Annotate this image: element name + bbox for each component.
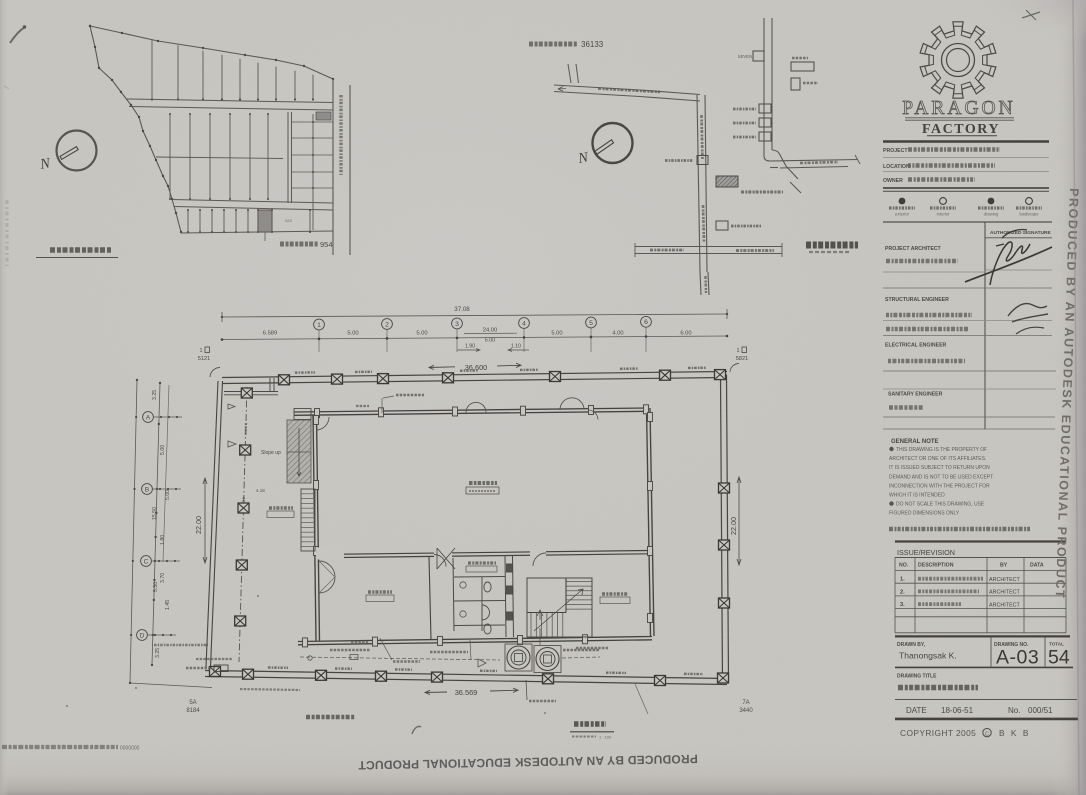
- svg-text:3.70: 3.70: [160, 573, 166, 583]
- svg-text:36133: 36133: [581, 40, 604, 49]
- svg-text:5821: 5821: [736, 356, 748, 362]
- svg-text:WHICH IT IS INTENDED: WHICH IT IS INTENDED: [889, 493, 945, 499]
- svg-text:5.00: 5.00: [347, 331, 358, 337]
- svg-text:24.00: 24.00: [483, 328, 498, 334]
- svg-text:023: 023: [285, 218, 292, 223]
- svg-text:FIGURED DIMENSIONS ONLY: FIGURED DIMENSIONS ONLY: [889, 511, 960, 517]
- svg-text:3.25: 3.25: [152, 390, 158, 400]
- svg-text:8184: 8184: [186, 708, 200, 714]
- svg-text:PROJECT: PROJECT: [883, 148, 908, 154]
- svg-text:GENERAL NOTE: GENERAL NOTE: [891, 439, 939, 445]
- svg-text:DATA: DATA: [1030, 563, 1044, 569]
- svg-text:15.50: 15.50: [152, 507, 158, 520]
- svg-text:5.00: 5.00: [416, 331, 427, 337]
- svg-text:000/51: 000/51: [1028, 706, 1053, 715]
- svg-text:18-06-51: 18-06-51: [941, 706, 974, 715]
- svg-text:THIS DRAWING IS THE PROPER: THIS DRAWING IS THE PROPERTY OF: [896, 447, 987, 453]
- svg-text:1.80: 1.80: [160, 535, 166, 545]
- svg-text:ARCHITECT: ARCHITECT: [989, 590, 1021, 596]
- svg-text:Slope up: Slope up: [261, 450, 281, 456]
- svg-text:IT IS ISSUED SUBJECT TO R: IT IS ISSUED SUBJECT TO RETURN UPON: [889, 465, 990, 471]
- svg-text:BY: BY: [1000, 563, 1008, 569]
- svg-text:STRUCTURAL ENGINEER: STRUCTURAL ENGINEER: [885, 297, 949, 303]
- svg-text:4.00: 4.00: [612, 331, 623, 337]
- svg-text:1 : 100: 1 : 100: [599, 735, 612, 740]
- svg-text:FACTORY: FACTORY: [922, 122, 1000, 137]
- svg-text:5.00: 5.00: [485, 338, 496, 344]
- svg-text:SEVEN: SEVEN: [738, 54, 752, 59]
- svg-text:ISSUE/REVISION: ISSUE/REVISION: [897, 548, 955, 557]
- svg-text:0000000: 0000000: [120, 746, 140, 752]
- svg-text:5.00: 5.00: [551, 331, 562, 337]
- svg-text:Interior: Interior: [936, 212, 950, 217]
- svg-text:954: 954: [320, 240, 333, 249]
- svg-text:1: 1: [737, 348, 740, 354]
- svg-text:1.45: 1.45: [165, 600, 171, 610]
- svg-text:7A: 7A: [742, 700, 749, 706]
- svg-text:COPYRIGHT 2005: COPYRIGHT 2005: [900, 728, 976, 738]
- svg-text:AUTHORIZED SIGNATURE: AUTHORIZED SIGNATURE: [990, 230, 1051, 236]
- svg-text:DATE: DATE: [906, 706, 927, 715]
- svg-text:6.00: 6.00: [680, 331, 691, 337]
- svg-text:ELECTRICAL ENGINEER: ELECTRICAL ENGINEER: [885, 343, 947, 349]
- svg-text:drawing: drawing: [984, 212, 999, 217]
- svg-text:DRAWING TITLE: DRAWING TITLE: [897, 674, 937, 680]
- svg-text:NO.: NO.: [899, 563, 909, 569]
- svg-text:1.: 1.: [900, 577, 905, 583]
- svg-text:1: 1: [317, 322, 321, 329]
- svg-text:5A: 5A: [189, 700, 196, 706]
- svg-text:B K B: B K B: [999, 728, 1030, 738]
- svg-text:4.18: 4.18: [256, 488, 265, 493]
- svg-text:ARCHITECT: ARCHITECT: [989, 577, 1021, 583]
- svg-text:36.569: 36.569: [455, 688, 478, 697]
- svg-text:A-03: A-03: [996, 647, 1039, 669]
- svg-text:A: A: [146, 414, 151, 421]
- svg-text:22.00: 22.00: [729, 517, 738, 535]
- svg-text:OWNER: OWNER: [883, 178, 903, 184]
- svg-text:6: 6: [644, 319, 648, 326]
- svg-text:5: 5: [589, 320, 593, 327]
- svg-text:PROJECT ARCHITECT: PROJECT ARCHITECT: [885, 246, 942, 252]
- svg-text:D: D: [140, 632, 145, 639]
- svg-text:2: 2: [385, 321, 389, 328]
- svg-text:22.00: 22.00: [194, 516, 203, 534]
- svg-text:54: 54: [1048, 647, 1070, 669]
- svg-text:ARCHITECT OR ONE OF ITS A: ARCHITECT OR ONE OF ITS AFFILIATES.: [889, 456, 986, 462]
- svg-text:5.00: 5.00: [165, 490, 171, 500]
- svg-text:DEMAND AND IS NOT TO BE: DEMAND AND IS NOT TO BE USED EXCEPT: [889, 474, 993, 480]
- svg-text:Thanongsak K.: Thanongsak K.: [899, 651, 957, 661]
- svg-text:5121: 5121: [198, 356, 210, 362]
- svg-text:INCONNECTION WITH THE PROJE: INCONNECTION WITH THE PROJECT FOR: [889, 483, 990, 489]
- svg-text:LOCATION: LOCATION: [883, 164, 910, 170]
- svg-text:PARAGON: PARAGON: [902, 98, 1015, 119]
- svg-text:SANITARY ENGINEER: SANITARY ENGINEER: [888, 392, 943, 398]
- svg-text:3.: 3.: [900, 602, 905, 608]
- svg-text:5.50: 5.50: [153, 582, 159, 592]
- svg-text:3.25: 3.25: [155, 648, 161, 658]
- svg-text:ARCHITECT: ARCHITECT: [989, 602, 1021, 608]
- svg-text:DO NOT SCALE THIS DRAWING,: DO NOT SCALE THIS DRAWING, USE: [896, 502, 985, 508]
- svg-text:landscape: landscape: [1019, 212, 1039, 217]
- svg-text:No.: No.: [1008, 706, 1020, 715]
- svg-text:4: 4: [522, 320, 526, 327]
- svg-text:1.10: 1.10: [511, 344, 521, 350]
- svg-text:B: B: [145, 486, 150, 493]
- svg-text:DESCRIPTION: DESCRIPTION: [918, 563, 954, 569]
- svg-text:exterior: exterior: [895, 212, 910, 217]
- svg-text:37.08: 37.08: [454, 306, 470, 313]
- svg-text:3: 3: [455, 321, 459, 328]
- svg-text:1.90: 1.90: [465, 344, 475, 350]
- svg-text:5.00: 5.00: [160, 445, 166, 455]
- svg-text:1: 1: [200, 348, 203, 354]
- svg-text:DRAWN BY,: DRAWN BY,: [897, 642, 926, 648]
- svg-text:3440: 3440: [739, 708, 753, 714]
- svg-text:C: C: [144, 558, 149, 565]
- svg-text:2.: 2.: [900, 589, 905, 595]
- svg-text:6.589: 6.589: [263, 331, 278, 337]
- svg-text:C: C: [985, 731, 989, 737]
